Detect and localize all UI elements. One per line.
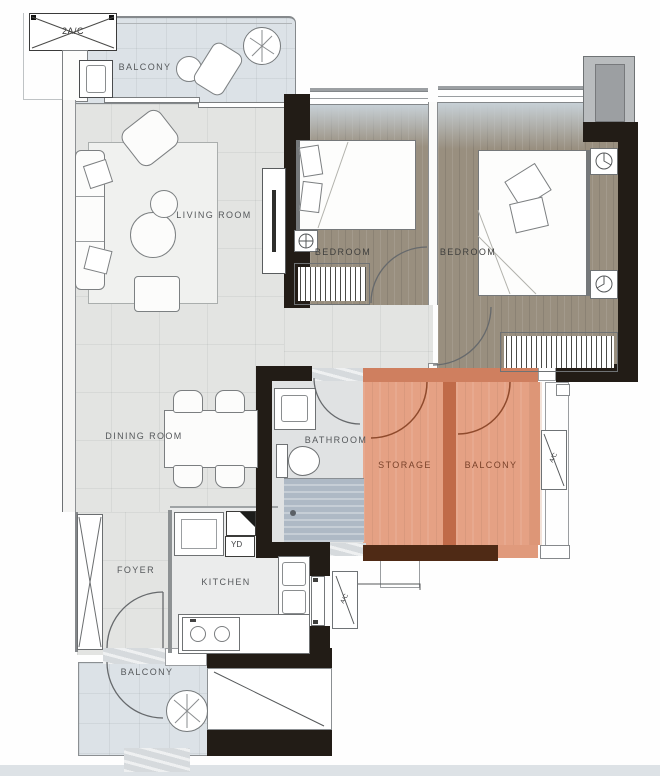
bottom-edge-strip — [0, 765, 660, 776]
wall-bathroom-top-stub — [256, 366, 312, 381]
exterior-room — [207, 668, 332, 730]
fridge-inner — [181, 519, 217, 549]
stove-controls — [190, 619, 232, 622]
room-label-bedroom1: BEDROOM — [312, 247, 374, 257]
washer-fold-corner — [240, 512, 255, 527]
room-label-balcony-bottom: BALCONY — [110, 667, 184, 677]
right-ac-ledge-cap-bottom — [540, 545, 570, 559]
unit-label: 2A/C — [43, 26, 103, 36]
room-label-dining: DINING ROOM — [96, 431, 192, 441]
room-label-bathroom: BATHROOM — [299, 435, 373, 445]
stove-burner-2 — [214, 626, 230, 642]
bed1-pillow-2 — [299, 181, 323, 213]
balcony-bottom-step — [124, 748, 190, 772]
bathroom-bottom-strip — [324, 543, 366, 556]
wall-bedroom2-right — [618, 122, 638, 380]
stove-burner-1 — [190, 626, 206, 642]
dining-chair-3 — [173, 465, 203, 488]
room-label-living: LIVING ROOM — [168, 210, 260, 220]
ottoman — [134, 276, 180, 312]
sliding-door-panel-right — [198, 102, 292, 108]
shoe-cabinet — [77, 514, 103, 650]
niche-tick-top — [313, 578, 318, 582]
bed2-nightstand-top — [590, 148, 618, 175]
tv — [272, 190, 276, 252]
bedroom1-window — [310, 91, 428, 105]
bedroom2-light-wash — [438, 103, 584, 149]
shower-floor — [284, 478, 364, 542]
left-exterior-wall — [62, 100, 76, 512]
room-label-bedroom2: BEDROOM — [437, 247, 499, 257]
bed2-nightstand-bottom — [590, 270, 618, 299]
dining-chair-1 — [173, 390, 203, 413]
wall-bathroom-left — [256, 366, 272, 558]
outer-boundary-line-h — [23, 99, 63, 100]
dining-chair-4 — [215, 465, 245, 488]
kitchen-right-niche — [311, 576, 325, 626]
wall-between-bedrooms — [428, 102, 438, 305]
niche-tick-bottom — [313, 620, 318, 624]
bathroom-sink-basin — [281, 395, 308, 422]
balcony-bottom-plant — [166, 690, 208, 732]
outer-boundary-line-v — [23, 13, 24, 100]
room-label-foyer: FOYER — [108, 565, 164, 575]
kitchen-foyer-divider — [168, 510, 172, 653]
service-shaft-inner — [595, 64, 625, 122]
highlight-divider-wall — [443, 382, 456, 545]
ac-ledge-corner-dot-left — [31, 15, 36, 20]
sliding-door-panel-left — [104, 97, 200, 103]
entry-threshold — [103, 648, 165, 664]
toilet-tank — [276, 444, 288, 478]
bedroom2-window — [438, 89, 584, 103]
kitchen-sink-basin-1 — [282, 562, 306, 586]
room-label-storage: STORAGE — [373, 460, 437, 470]
wall-exterior-room-bottom — [207, 730, 332, 756]
yard-label: YD — [231, 540, 242, 549]
dining-chair-2 — [215, 390, 245, 413]
ledge-box-below-storage — [380, 558, 420, 588]
highlight-bottom-wall-dark — [363, 545, 498, 561]
kitchen-sink-basin-2 — [282, 590, 306, 614]
room-label-kitchen: KITCHEN — [194, 577, 258, 587]
highlight-bottom-wall-salmon — [498, 545, 538, 558]
room-label-balcony-right: BALCONY — [456, 460, 526, 470]
wall-kitchen-right-top — [310, 542, 330, 576]
wardrobe2 — [500, 332, 618, 372]
right-ac-ledge-cap-top — [556, 384, 570, 396]
hallway-floor — [284, 303, 433, 370]
wardrobe1 — [294, 263, 370, 305]
balcony-plant — [243, 27, 281, 65]
bathroom-threshold — [312, 368, 363, 381]
ac-outdoor-unit-inner — [86, 65, 106, 93]
floor-plan: 2A/C BALCONY LIVING ROOM — [0, 0, 660, 776]
ac-ledge-corner-dot-right — [109, 15, 114, 20]
room-label-balcony-top: BALCONY — [105, 62, 185, 72]
